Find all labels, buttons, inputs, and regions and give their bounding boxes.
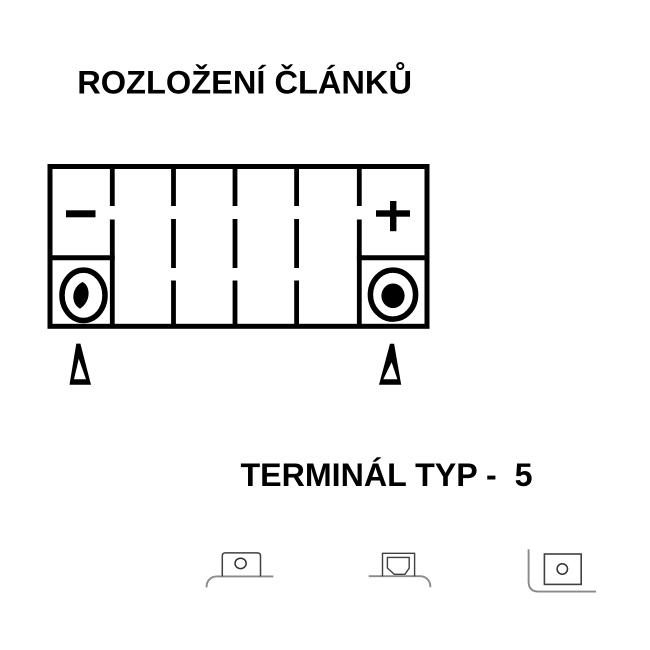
svg-text:ROZLOŽENÍ ČLÁNKŮ: ROZLOŽENÍ ČLÁNKŮ [77,61,412,101]
svg-text:TERMINÁL TYP - 5: TERMINÁL TYP - 5 [241,456,533,493]
